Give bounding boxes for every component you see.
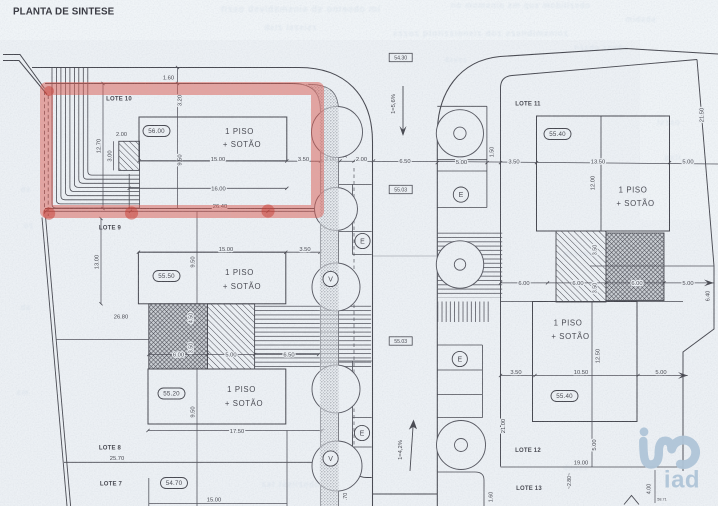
- svg-text:iad: iad: [664, 467, 700, 494]
